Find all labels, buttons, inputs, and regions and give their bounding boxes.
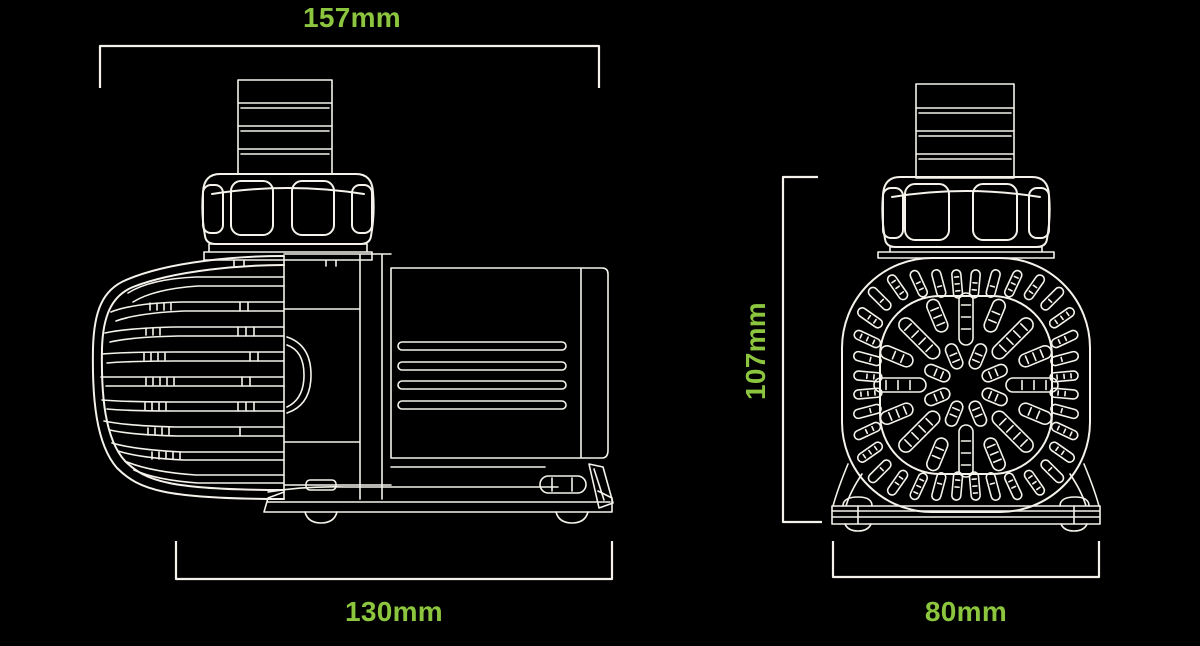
slot-rib: [1012, 486, 1016, 488]
slot-rib: [990, 483, 994, 484]
rim-slot: [853, 421, 882, 441]
dimension-label-side-bottom-width: 130mm: [345, 596, 443, 628]
slot-rib: [866, 430, 868, 434]
rim-slot: [909, 269, 929, 298]
slot-rib: [873, 340, 875, 344]
slot-rib: [989, 372, 992, 378]
grille-slot: [896, 408, 943, 455]
slot-rib: [1009, 480, 1013, 482]
motor-vent-slot: [398, 342, 566, 350]
slot-rib: [1033, 353, 1036, 360]
grille-slot: [944, 399, 965, 428]
slot-rib: [1049, 468, 1052, 471]
slot-rib: [1070, 432, 1072, 436]
grille-slot: [923, 363, 952, 384]
grille-slot: [982, 436, 1007, 472]
slot-rib: [936, 447, 943, 450]
slot-rib: [1057, 426, 1059, 430]
rim-slot: [1048, 440, 1076, 463]
slot-rib: [912, 433, 918, 439]
front-view-drawing: [832, 84, 1100, 531]
slot-rib: [919, 338, 925, 344]
front-body: [842, 258, 1090, 512]
slot-rib: [1021, 324, 1027, 330]
slot-rib: [880, 468, 883, 471]
rim-slot: [1050, 351, 1079, 367]
front-nut-flange: [878, 247, 1054, 258]
slot-rib: [917, 282, 921, 284]
slot-rib: [896, 286, 899, 288]
rim-slot: [1050, 329, 1079, 349]
slot-rib: [926, 345, 932, 351]
grille-slot: [1017, 401, 1053, 426]
rim-slot: [1050, 403, 1079, 419]
slot-rib: [941, 392, 944, 398]
slot-rib: [1056, 447, 1058, 450]
slot-rib: [994, 459, 1001, 462]
rim-slot: [853, 351, 882, 367]
rim-slot: [1039, 286, 1065, 312]
side-base-plate: [264, 480, 612, 523]
slot-rib: [934, 394, 937, 400]
rim-slot: [854, 371, 883, 382]
slot-rib: [901, 355, 904, 362]
slot-rib: [874, 320, 876, 323]
motor-vent-slot: [398, 381, 566, 389]
slot-rib: [953, 360, 959, 363]
slot-rib: [872, 427, 874, 431]
grille-slot: [896, 315, 943, 362]
slot-rib: [914, 492, 918, 494]
rim-slot: [886, 469, 909, 497]
grille-slot: [980, 363, 1009, 384]
slot-rib: [892, 280, 895, 282]
slot-rib: [992, 311, 999, 314]
grille-slot: [967, 342, 988, 371]
pump-dimension-diagram: 157mm 130mm 107mm 80mm: [0, 0, 1200, 646]
slot-rib: [903, 407, 906, 414]
slot-rib: [988, 444, 995, 447]
suction-feet: [305, 512, 588, 523]
slot-rib: [1033, 482, 1036, 484]
slot-rib: [869, 451, 871, 454]
slot-rib: [1028, 408, 1031, 415]
dimension-label-front-bottom-width: 80mm: [925, 596, 1007, 628]
rim-slot: [985, 472, 1001, 501]
slot-rib: [1065, 337, 1067, 341]
slot-rib: [889, 413, 892, 420]
slot-rib: [896, 410, 899, 417]
slot-rib: [937, 322, 944, 325]
slot-rib: [932, 456, 939, 459]
slot-rib: [1061, 409, 1062, 413]
slot-rib: [1033, 285, 1036, 287]
slot-rib: [892, 351, 895, 358]
grille-slot: [879, 344, 915, 369]
rim-slot: [853, 403, 882, 419]
slot-rib: [1011, 283, 1015, 285]
grille-slot: [925, 436, 950, 472]
slot-rib: [905, 324, 911, 330]
slot-rib: [1007, 338, 1013, 344]
grille-slot: [989, 315, 1036, 362]
rim-slot: [856, 306, 884, 329]
grille-slot: [989, 408, 1036, 455]
pump-line-art: [0, 0, 1200, 646]
slot-rib: [1067, 312, 1069, 315]
slot-rib: [1062, 451, 1064, 454]
side-union-nut-outline: [202, 174, 373, 244]
slot-rib: [1061, 357, 1062, 361]
slot-rib: [875, 447, 877, 450]
slot-rib: [950, 414, 956, 417]
slot-rib: [895, 482, 898, 484]
slot-rib: [1008, 289, 1012, 291]
rim-slot: [1050, 388, 1079, 399]
slot-rib: [899, 477, 902, 479]
slot-rib: [934, 315, 941, 318]
slot-rib: [1058, 340, 1060, 344]
slot-rib: [1061, 316, 1063, 319]
slot-rib: [934, 369, 937, 375]
slot-rib: [919, 288, 923, 290]
slot-rib: [917, 485, 921, 487]
grille-slot: [1017, 344, 1053, 369]
slot-rib: [1007, 426, 1013, 432]
side-view-drawing: [93, 80, 613, 523]
rim-slot: [1003, 472, 1023, 501]
side-hose-barb: [238, 80, 332, 174]
dimension-label-front-height: 107mm: [740, 302, 772, 400]
side-union-nut: [202, 174, 373, 244]
slot-rib: [991, 452, 998, 455]
slot-rib: [926, 419, 932, 425]
slot-rib: [938, 286, 942, 287]
motor-vent-slot: [398, 362, 566, 370]
slot-rib: [1000, 345, 1006, 351]
slot-rib: [880, 299, 883, 302]
slot-rib: [973, 408, 979, 411]
side-nut-flange: [204, 244, 372, 266]
slot-rib: [1014, 331, 1020, 337]
grille-slot: [923, 386, 952, 407]
slot-rib: [1025, 356, 1028, 363]
dim-bracket-80mm: [833, 541, 1099, 577]
side-motor-body: [391, 268, 608, 467]
slot-rib: [868, 316, 870, 319]
rim-slot: [1039, 458, 1065, 484]
slot-rib: [860, 334, 862, 338]
grille-slot: [980, 386, 1009, 407]
slot-rib: [1021, 440, 1027, 446]
slot-rib: [973, 360, 979, 363]
rim-slot: [867, 458, 893, 484]
slot-rib: [900, 292, 903, 294]
slot-rib: [1055, 320, 1057, 323]
motor-can-outline: [391, 268, 608, 467]
slot-rib: [953, 408, 959, 411]
motor-vent-slot: [398, 401, 566, 409]
slot-rib: [931, 308, 938, 311]
slot-rib: [912, 331, 918, 337]
rim-slot: [1023, 273, 1046, 301]
slot-rib: [1014, 433, 1020, 439]
slot-rib: [1029, 291, 1032, 293]
slot-rib: [975, 353, 981, 356]
slot-rib: [938, 483, 942, 484]
slot-rib: [1040, 350, 1043, 357]
grille-slot: [944, 342, 965, 371]
grille-slot: [982, 298, 1007, 334]
slot-rib: [995, 394, 998, 400]
front-hose-barb: [916, 84, 1014, 178]
front-body-inner: [880, 296, 1052, 474]
rim-slot: [931, 472, 947, 501]
dim-bracket-107mm: [783, 177, 822, 522]
slot-rib: [975, 414, 981, 417]
slot-rib: [989, 392, 992, 398]
slot-rib: [989, 320, 996, 323]
slot-rib: [920, 479, 924, 481]
side-center-block: [284, 254, 391, 499]
front-grille-starburst: [874, 293, 1058, 477]
cord-gland-pill: [540, 476, 586, 493]
slot-rib: [863, 455, 865, 458]
slot-rib: [1029, 476, 1032, 478]
front-union-nut: [882, 177, 1049, 247]
slot-rib: [941, 372, 944, 378]
slot-rib: [1049, 299, 1052, 302]
slot-rib: [990, 286, 994, 287]
grille-slot: [959, 425, 973, 477]
slot-rib: [870, 357, 871, 361]
slot-rib: [1014, 276, 1018, 278]
rim-slot: [985, 269, 1001, 298]
slot-rib: [905, 440, 911, 446]
grille-slot: [967, 399, 988, 428]
slot-rib: [919, 426, 925, 432]
slot-rib: [1037, 487, 1040, 489]
slot-rib: [995, 369, 998, 375]
slot-rib: [870, 409, 871, 413]
grille-slot: [925, 298, 950, 334]
slot-rib: [867, 337, 869, 341]
dimension-label-side-top-width: 157mm: [303, 2, 401, 34]
slot-rib: [1064, 429, 1066, 433]
grille-slot: [879, 401, 915, 426]
rim-slot: [931, 269, 947, 298]
block-handle-detail: [287, 337, 311, 413]
slot-rib: [1037, 411, 1040, 418]
dim-bracket-130mm: [176, 541, 612, 579]
intake-grille-slats: [101, 277, 284, 483]
rim-slot: [867, 286, 893, 312]
slot-rib: [950, 353, 956, 356]
dim-bracket-157mm: [100, 46, 599, 88]
grille-slot: [959, 293, 973, 345]
front-suction-feet: [843, 497, 1089, 531]
slot-rib: [1000, 419, 1006, 425]
